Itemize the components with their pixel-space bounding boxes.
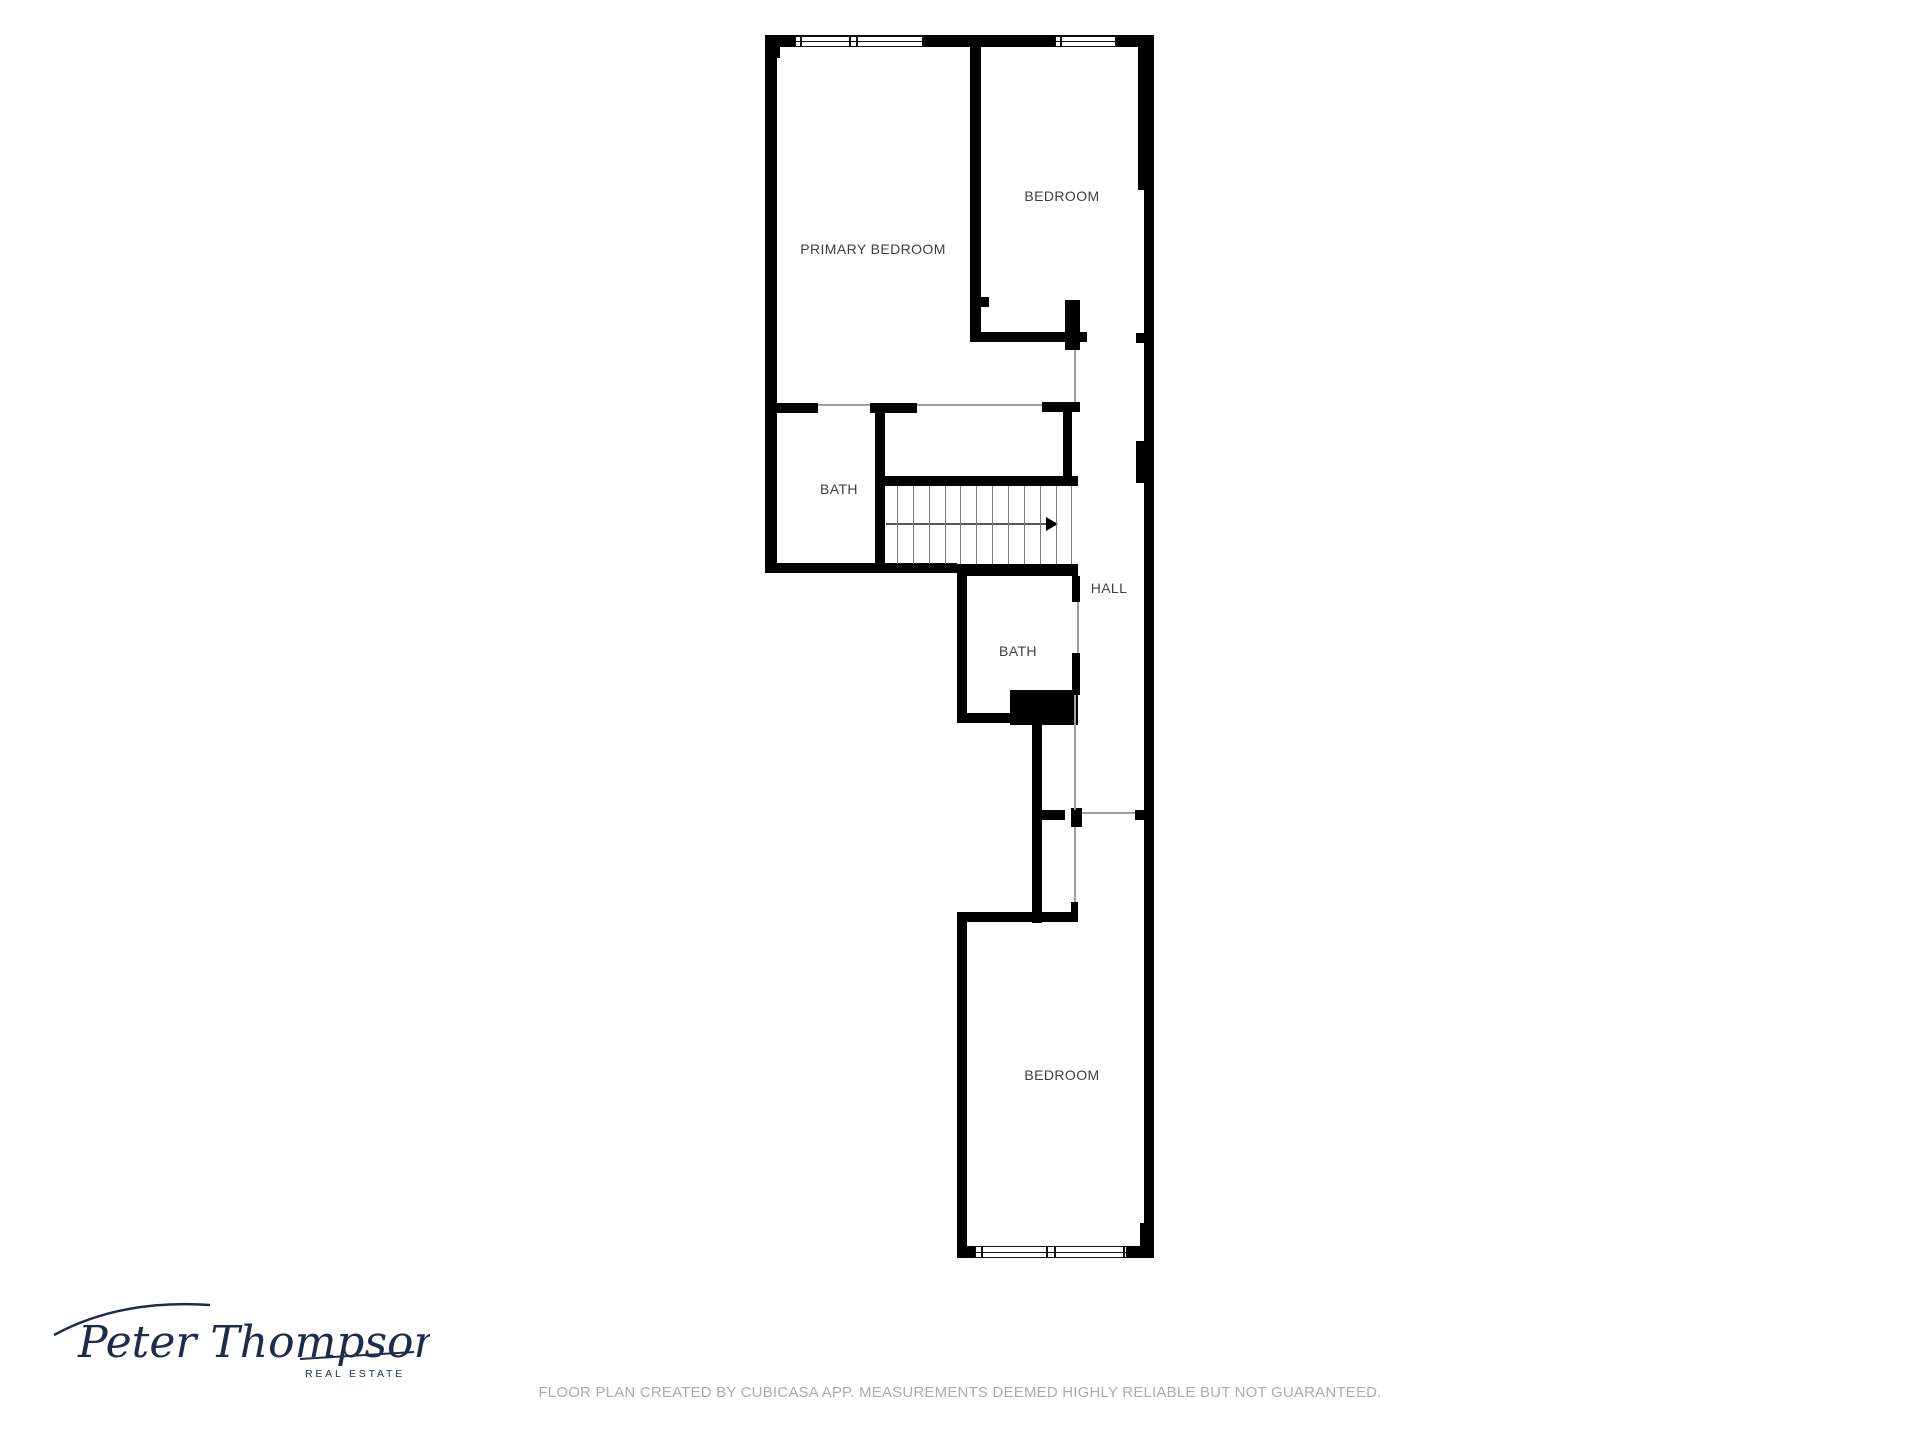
stair-tread xyxy=(913,486,914,564)
stairs-direction-line xyxy=(886,523,1046,525)
window-mullion xyxy=(849,37,851,46)
wall-segment xyxy=(1032,810,1065,820)
stair-tread xyxy=(960,486,961,564)
wall-segment xyxy=(981,297,989,307)
logo-subtitle-text: REAL ESTATE xyxy=(305,1368,405,1380)
wall-segment xyxy=(1063,405,1072,478)
floor-plan-page: PRIMARY BEDROOM BEDROOM BATH HALL BATH B… xyxy=(0,0,1920,1440)
wall-segment xyxy=(765,58,777,573)
wall-segment xyxy=(957,912,967,1258)
wall-segment xyxy=(1138,35,1154,190)
room-label-primary-bedroom: PRIMARY BEDROOM xyxy=(800,241,946,257)
window xyxy=(1055,36,1118,47)
window-pane-line xyxy=(976,1252,1126,1253)
wall-segment xyxy=(1136,441,1154,483)
stair-tread xyxy=(992,486,993,564)
wall-segment xyxy=(1144,190,1154,333)
room-label-bedroom-bottom: BEDROOM xyxy=(1024,1067,1099,1083)
room-label-bath-middle: BATH xyxy=(999,643,1037,659)
opening-line xyxy=(1077,602,1079,653)
opening-line xyxy=(1074,695,1076,810)
room-label-bath-left: BATH xyxy=(820,481,858,497)
logo-script-text: Peter Thompson xyxy=(77,1317,430,1368)
wall-segment xyxy=(1144,483,1154,1223)
stair-tread xyxy=(945,486,946,564)
wall-segment xyxy=(970,47,981,342)
room-label-hall: HALL xyxy=(1091,580,1128,596)
wall-segment xyxy=(1144,343,1154,441)
opening-line xyxy=(1074,350,1076,402)
stair-tread xyxy=(929,486,930,564)
wall-segment xyxy=(1135,810,1145,820)
stair-tread xyxy=(1024,486,1025,564)
window-mullion xyxy=(922,37,924,46)
window-mullion xyxy=(1060,37,1062,46)
opening-line xyxy=(1082,812,1135,814)
wall-segment xyxy=(1032,725,1042,923)
wall-segment xyxy=(1136,333,1154,343)
window-pane-line xyxy=(796,41,924,42)
floor-plan: PRIMARY BEDROOM BEDROOM BATH HALL BATH B… xyxy=(0,0,1920,1440)
window-mullion xyxy=(1123,1247,1125,1257)
wall-segment xyxy=(875,403,885,573)
wall-segment xyxy=(957,713,1010,723)
wall-segment xyxy=(1042,402,1080,412)
stair-tread xyxy=(1008,486,1009,564)
stair-tread xyxy=(1040,486,1041,564)
stair-tread xyxy=(1071,486,1072,564)
wall-segment xyxy=(1010,690,1078,725)
window-mullion xyxy=(856,37,858,46)
opening-line xyxy=(1074,827,1076,902)
window xyxy=(975,1246,1127,1258)
wall-segment xyxy=(1065,300,1080,350)
window xyxy=(795,36,925,47)
wall-segment xyxy=(1072,653,1080,695)
wall-segment xyxy=(765,403,818,413)
window-mullion xyxy=(1115,37,1117,46)
room-label-bedroom-top: BEDROOM xyxy=(1024,188,1099,204)
window-pane-line xyxy=(1056,41,1117,42)
window-mullion xyxy=(800,37,802,46)
window-mullion xyxy=(1046,1247,1048,1257)
stair-tread xyxy=(976,486,977,564)
wall-segment xyxy=(765,36,780,58)
stair-tread xyxy=(1056,486,1057,564)
disclaimer-text: FLOOR PLAN CREATED BY CUBICASA APP. MEAS… xyxy=(0,1384,1920,1401)
window-mullion xyxy=(981,1247,983,1257)
window-mullion xyxy=(1054,1247,1056,1257)
wall-segment xyxy=(875,476,1078,486)
wall-segment xyxy=(957,564,1078,576)
wall-segment xyxy=(1072,576,1080,602)
opening-line xyxy=(917,404,1042,406)
stair-tread xyxy=(897,486,898,564)
wall-segment xyxy=(957,576,967,723)
wall-segment xyxy=(957,912,1078,922)
wall-segment xyxy=(1071,808,1082,827)
opening-line xyxy=(818,404,870,406)
wall-segment xyxy=(765,563,957,573)
